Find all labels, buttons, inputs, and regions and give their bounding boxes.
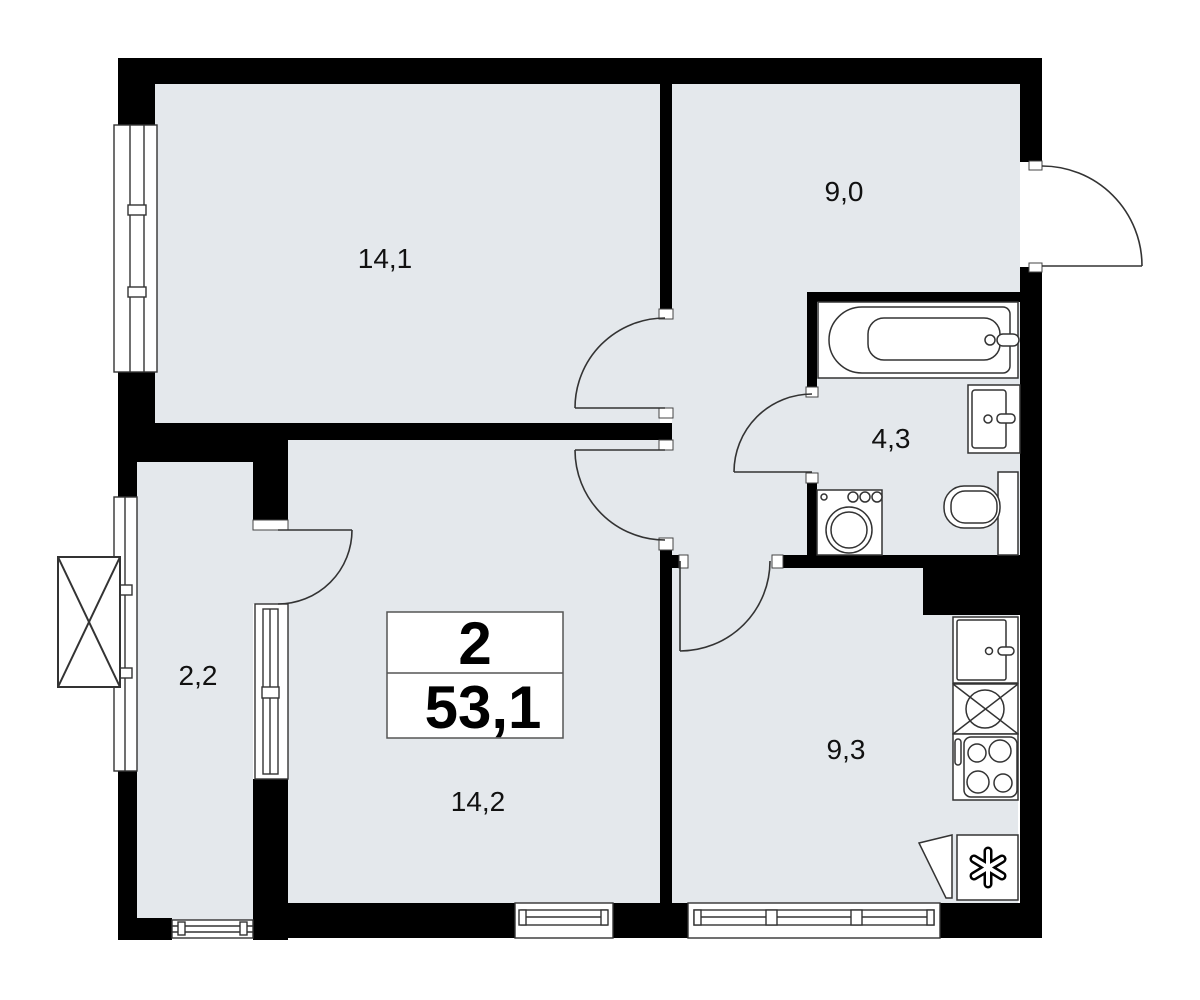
wall-cap — [253, 520, 288, 530]
kitchen-sink-icon — [953, 617, 1018, 683]
wall-living-hall — [660, 84, 672, 319]
label-bedroom-area: 14,2 — [451, 786, 506, 817]
balcony-hatch-icon — [58, 557, 120, 687]
rooms-count-value: 2 — [458, 610, 491, 677]
window-bedroom-bottom — [515, 903, 613, 938]
floor-plan-svg: 14,1 9,0 4,3 2,2 14,2 9,3 2 53,1 — [0, 0, 1200, 1000]
wall-balcony-left-2 — [118, 771, 137, 920]
window-bedroom-left — [255, 604, 288, 779]
wall-right-upper — [1020, 84, 1042, 162]
floor-plan: 14,1 9,0 4,3 2,2 14,2 9,3 2 53,1 — [0, 0, 1200, 1000]
wall-balcony-bottom-2 — [253, 918, 288, 940]
wall-bedroom-kitchen — [660, 550, 672, 903]
wall-cap — [806, 473, 818, 483]
wall-bottom-1 — [288, 903, 515, 938]
wall-kitchen-corner-block — [923, 555, 1020, 615]
label-living-room-area: 14,1 — [358, 243, 413, 274]
wall-left-upper-2 — [118, 372, 155, 430]
total-area-value: 53,1 — [425, 674, 542, 741]
doorway-kitchen — [680, 555, 773, 568]
door-entry — [1042, 166, 1142, 266]
wall-cap — [806, 387, 818, 397]
entry-opening — [1020, 162, 1042, 267]
bathtub-icon — [818, 302, 1019, 378]
wall-top — [118, 58, 1042, 84]
floor-balcony — [137, 462, 253, 920]
window-living-left — [114, 125, 157, 372]
wall-bath-left-2 — [807, 473, 817, 557]
wall-cap — [1029, 263, 1042, 272]
label-entrance-hall-area: 9,0 — [825, 176, 864, 207]
wall-cap — [659, 440, 673, 450]
doorway-living — [660, 319, 672, 408]
label-kitchen-area: 9,3 — [827, 734, 866, 765]
label-balcony-area: 2,2 — [179, 660, 218, 691]
vent-shaft-icon — [953, 684, 1018, 734]
doorway-bathroom — [807, 397, 817, 473]
wall-cap — [659, 408, 673, 418]
wall-bottom-3 — [940, 903, 1042, 938]
window-balcony-bottom — [172, 920, 253, 938]
wall-bath-left-1 — [807, 292, 817, 397]
window-kitchen-bottom — [688, 903, 940, 938]
wall-cap — [772, 555, 783, 568]
wall-balcony-bedroom-1 — [253, 462, 288, 520]
wall-balcony-top — [118, 423, 288, 462]
wall-bath-top — [807, 292, 1020, 302]
washbasin-icon — [968, 385, 1020, 453]
label-bathroom-area: 4,3 — [872, 423, 911, 454]
stove-icon — [953, 734, 1018, 800]
wall-left-upper-1 — [118, 58, 155, 125]
doorway-balcony — [253, 530, 288, 604]
wall-balcony-bottom-1 — [118, 918, 172, 940]
wall-balcony-bedroom-2 — [253, 779, 288, 918]
washing-machine-icon — [817, 490, 882, 555]
wall-kitchen-top — [773, 555, 923, 568]
info-box: 2 53,1 — [387, 610, 563, 741]
wall-bottom-2 — [613, 903, 688, 938]
wall-cap — [1029, 161, 1042, 170]
wall-living-bedroom — [288, 423, 672, 440]
wall-right-lower — [1020, 267, 1042, 938]
doorway-bedroom — [660, 450, 672, 538]
